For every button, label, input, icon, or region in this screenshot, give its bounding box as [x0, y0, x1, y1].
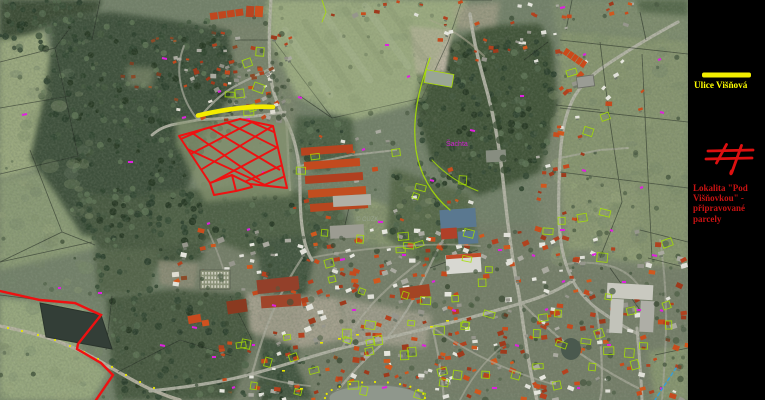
- svg-text:© ČUZK: © ČUZK: [356, 216, 378, 223]
- svg-text:Šachta: Šachta: [446, 139, 468, 148]
